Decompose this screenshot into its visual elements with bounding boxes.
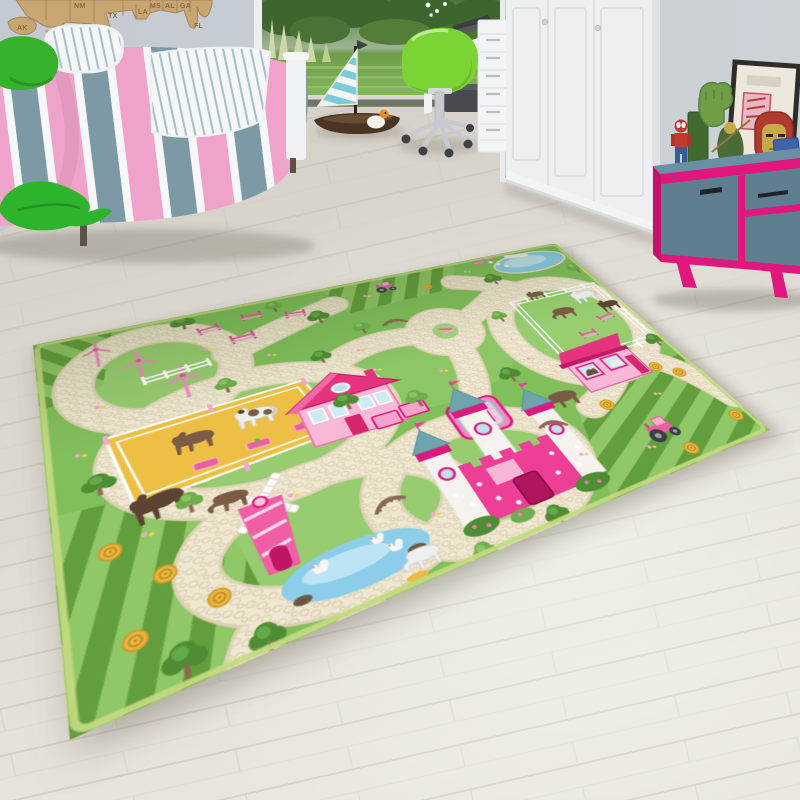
sideboard-divider bbox=[738, 175, 745, 264]
kids-room-scene: AK NM TX LA MS AL GA FL bbox=[0, 0, 800, 800]
map-label-fl: FL bbox=[194, 23, 204, 30]
map-label-ak: AK bbox=[17, 25, 28, 32]
wardrobe-knob bbox=[542, 19, 547, 24]
sideboard-left-stile bbox=[653, 166, 661, 262]
sideboard-front bbox=[661, 168, 800, 268]
map-label-ms: MS bbox=[150, 3, 161, 10]
map-label-tx: TX bbox=[108, 13, 118, 20]
wardrobe-knob bbox=[595, 25, 600, 30]
bed-frame-post bbox=[286, 56, 306, 160]
bed-leg bbox=[290, 158, 296, 173]
map-label-nm: NM bbox=[74, 3, 86, 10]
chair-column bbox=[435, 92, 444, 122]
map-label-ga: GA bbox=[180, 3, 191, 10]
bed-post-cap bbox=[283, 52, 309, 60]
sheet-thin-striped bbox=[150, 48, 270, 137]
map-label-al: AL bbox=[165, 3, 175, 10]
bed-leg bbox=[80, 224, 87, 246]
map-label-la: LA bbox=[138, 9, 148, 16]
